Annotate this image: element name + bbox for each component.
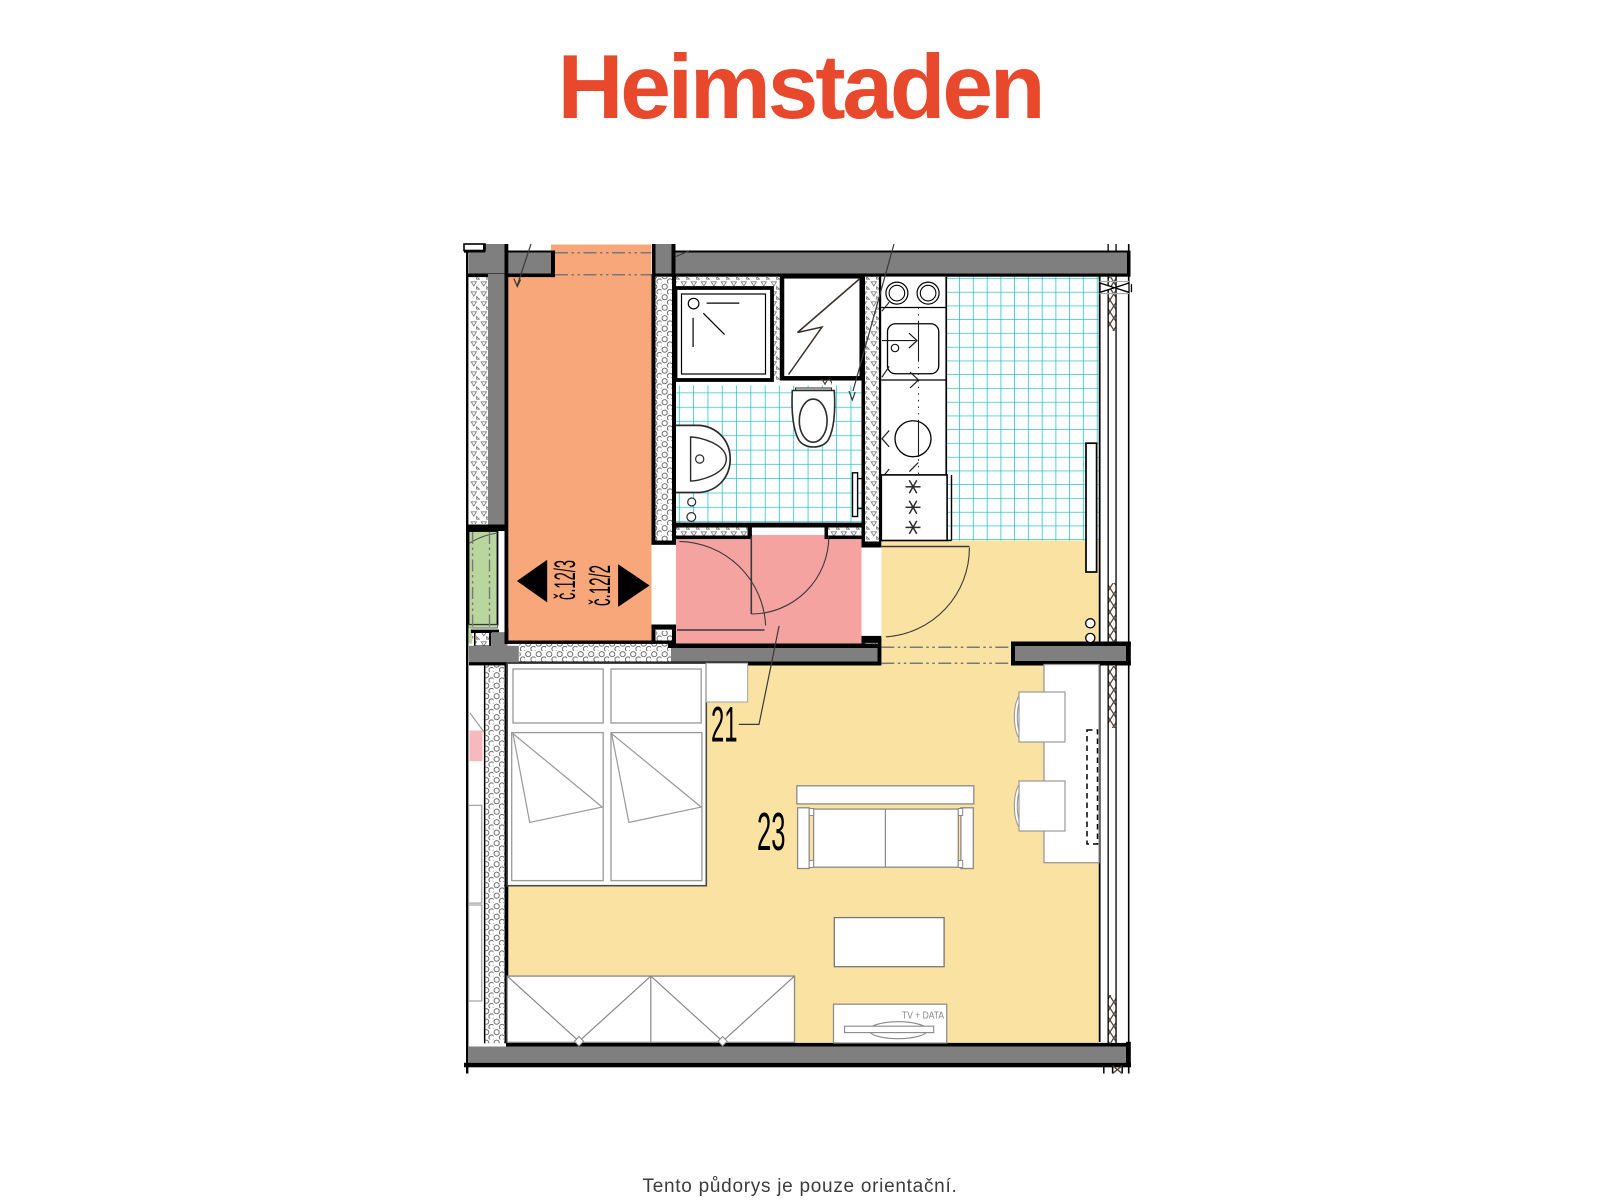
svg-text:TV + DATA: TV + DATA	[902, 1010, 944, 1022]
svg-text:č.12/3: č.12/3	[549, 560, 582, 600]
svg-text:23: 23	[757, 802, 786, 862]
svg-text:21: 21	[711, 697, 738, 753]
svg-text:Heimstaden: Heimstaden	[558, 37, 1043, 138]
svg-text:č.12/2: č.12/2	[584, 565, 617, 606]
svg-text:Tento půdorys je pouze orienta: Tento půdorys je pouze orientační.	[643, 1176, 958, 1197]
